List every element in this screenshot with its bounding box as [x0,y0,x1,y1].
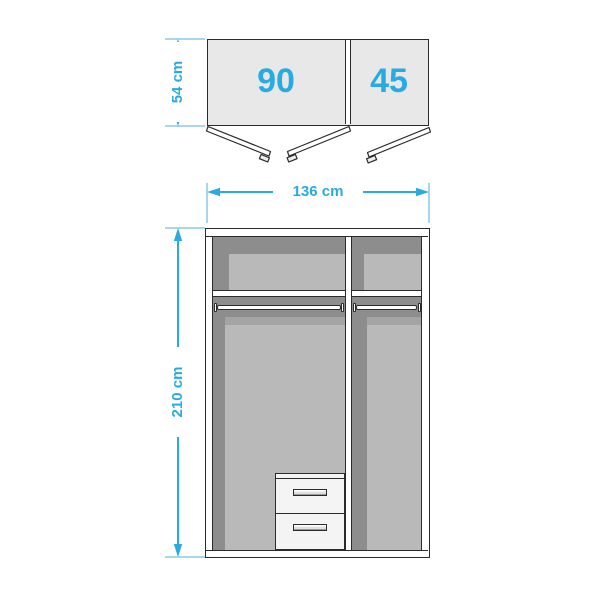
door-handle-icon [367,155,377,163]
drawer-unit [275,473,345,550]
hanging-rail-end-cap [418,303,422,312]
arrow-down-icon [174,544,182,557]
door-swing-right [368,128,431,158]
arrow-up-icon [174,228,182,241]
hanging-rail-end-cap [341,303,345,312]
door-swing-left [207,127,271,157]
hanging-rail-left [217,305,341,311]
right-rail-gap [352,297,421,304]
arrow-right-icon [416,188,429,196]
height-dimension-label: 210 cm [169,347,187,437]
side-wall-left [206,237,213,550]
left-rail-gap [213,297,345,304]
width-dimension-label: 136 cm [273,183,363,201]
drawer-handle [293,489,327,496]
drawer-1 [276,479,344,514]
plan-left-section-width: 90 [241,61,311,101]
top-panel [206,229,428,237]
hanging-rail-right [356,305,417,311]
right-upper-back-panel [364,254,421,290]
center-divider [345,237,352,550]
left-upper-back-panel [229,254,345,290]
depth-dimension-label: 54 cm [169,42,187,122]
drawer-handle [293,524,327,531]
door-swing-middle [288,127,351,157]
plan-center-divider [345,40,351,124]
front-view [205,228,430,558]
shelf-left [213,290,345,297]
plan-right-section-width: 45 [354,61,424,101]
side-wall-right [421,237,428,550]
left-lower-shadow [225,317,345,325]
right-lower-back-panel [367,317,421,550]
base-plinth [206,550,428,556]
shelf-right [352,290,421,297]
wardrobe-dimension-diagram: 90 45 [0,0,600,600]
drawer-2 [276,514,344,549]
right-lower-shadow [367,317,421,325]
arrow-left-icon [207,188,220,196]
